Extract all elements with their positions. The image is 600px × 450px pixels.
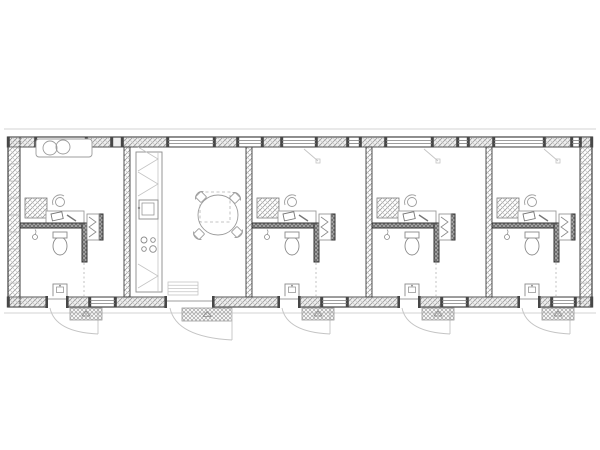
- unit-1-basin-tap: [59, 285, 61, 287]
- unit-3-door-cut: [400, 296, 418, 308]
- main-entry-jamb: [164, 296, 167, 308]
- unit-3-toilet-tank: [405, 232, 419, 238]
- unit-2-door-jamb: [277, 296, 280, 308]
- unit-4-plumbing-wall: [554, 223, 559, 262]
- main-entry-mat: [182, 308, 232, 321]
- unit-1-toilet-tank: [53, 232, 67, 238]
- unit-4-pendant-light: [505, 235, 510, 240]
- unit-1-desk-chair: [56, 198, 65, 207]
- wall-pier-bottom: [298, 297, 322, 307]
- wall-pier-bottom: [8, 297, 48, 307]
- unit-2-pendant-cord: [267, 230, 268, 235]
- unit-1-shelf: [25, 198, 47, 218]
- wall-post: [590, 137, 593, 148]
- wall-post: [384, 137, 387, 148]
- chair-seat: [229, 192, 240, 203]
- floor-plan-svg: [0, 0, 600, 450]
- exterior-wall-right: [580, 137, 592, 307]
- exterior-wall-left: [8, 137, 20, 307]
- unit-2-desk-chair: [288, 198, 297, 207]
- chair-seat: [193, 228, 204, 239]
- wall-post: [359, 137, 362, 148]
- wall-post: [121, 137, 124, 148]
- window-cut: [442, 298, 467, 306]
- wall-pier-top: [544, 137, 572, 147]
- wall-post: [315, 137, 318, 148]
- window-cut: [282, 138, 316, 146]
- dining-chair-2: [228, 191, 242, 205]
- wall-pier-bottom: [418, 297, 442, 307]
- wall-post: [346, 137, 349, 148]
- unit-4-basin-tap: [531, 285, 533, 287]
- kitchen-dining: [136, 147, 244, 340]
- wall-post: [280, 137, 283, 148]
- wall-post: [467, 137, 470, 148]
- wall-pier-top: [432, 137, 458, 147]
- window-cut: [494, 138, 544, 146]
- unit-3-door-jamb: [397, 296, 400, 308]
- unit-4-shower-wall: [571, 214, 575, 240]
- window-cut: [168, 138, 214, 146]
- bay-partition-2: [246, 147, 252, 297]
- unit-4-pendant-cord: [507, 230, 508, 235]
- unit-4-desk-chair: [528, 198, 537, 207]
- unit-1-door-jamb: [66, 296, 69, 308]
- unit-1-plumbing-wall: [82, 223, 87, 262]
- unit-3-plumbing-wall: [434, 223, 439, 262]
- floor-plan: [0, 0, 600, 450]
- unit-2-toilet: [285, 237, 299, 255]
- wall-pier-bottom: [66, 297, 90, 307]
- wall-post: [579, 137, 582, 148]
- window-cut: [90, 298, 115, 306]
- chair-seat: [195, 191, 206, 202]
- wall-pier-top: [122, 137, 168, 147]
- unit-1-pendant-light: [33, 235, 38, 240]
- unit-3-desk-chair: [408, 198, 417, 207]
- wall-pier-top: [468, 137, 494, 147]
- unit-1-door-cut: [48, 296, 66, 308]
- unit-2-toilet-tank: [285, 232, 299, 238]
- window-cut: [386, 138, 432, 146]
- window-cut: [322, 298, 347, 306]
- kitchen-faucet: [138, 207, 140, 209]
- wall-pier-bottom: [212, 297, 280, 307]
- wall-post: [110, 137, 113, 148]
- unit-2-entry-mat: [302, 308, 334, 320]
- unit-1-desk-chair-back: [53, 195, 64, 205]
- unit-4-toilet-tank: [525, 232, 539, 238]
- unit-4-toilet: [525, 237, 539, 255]
- wall-post: [346, 297, 349, 308]
- dining-chair-3: [230, 225, 244, 239]
- unit-2-shower-wall: [331, 214, 335, 240]
- unit-4-door-jamb: [538, 296, 541, 308]
- unit-1-shower-wall: [99, 214, 103, 240]
- unit-4-door-jamb: [517, 296, 520, 308]
- unit-2-pendant-light: [265, 235, 270, 240]
- unit-1-toilet: [53, 237, 67, 255]
- unit-2-door-jamb: [298, 296, 301, 308]
- wall-post: [570, 137, 573, 148]
- wall-pier-top: [316, 137, 348, 147]
- unit-3-shelf: [377, 198, 399, 218]
- wall-post: [7, 297, 10, 308]
- main-entry-jamb: [212, 296, 215, 308]
- wall-post: [590, 297, 593, 308]
- wall-post: [213, 137, 216, 148]
- wall-post: [574, 297, 577, 308]
- unit-3-bath-partition: [372, 223, 436, 228]
- wall-post: [543, 137, 546, 148]
- wall-pier-top: [360, 137, 386, 147]
- wall-post: [456, 137, 459, 148]
- unit-4-shelf: [497, 198, 519, 218]
- wall-post: [261, 137, 264, 148]
- unit-4-door-cut: [520, 296, 538, 308]
- wall-post: [550, 297, 553, 308]
- unit-3-basin-tap: [411, 285, 413, 287]
- wall-pier-bottom: [575, 297, 592, 307]
- unit-3-pendant-cord: [387, 230, 388, 235]
- unit-4-bath-partition: [492, 223, 556, 228]
- unit-2-plumbing-wall: [314, 223, 319, 262]
- unit-3-desk-chair-back: [405, 195, 416, 205]
- unit-1-door-jamb: [45, 296, 48, 308]
- unit-4-entry-mat: [542, 308, 574, 320]
- wall-post: [88, 297, 91, 308]
- unit-2-bath-partition: [252, 223, 316, 228]
- unit-3-entry-mat: [422, 308, 454, 320]
- unit-3-door-jamb: [418, 296, 421, 308]
- unit-1-pendant-cord: [35, 230, 36, 235]
- wall-pier-top: [262, 137, 282, 147]
- unit-2-shelf: [257, 198, 279, 218]
- unit-3-pendant-light: [385, 235, 390, 240]
- unit-1-bath-partition: [20, 223, 84, 228]
- bay-partition-4: [486, 147, 492, 297]
- wall-pier-bottom: [347, 297, 400, 307]
- wall-pier-top: [214, 137, 238, 147]
- window-cut: [348, 138, 360, 146]
- wall-post: [492, 137, 495, 148]
- wall-post: [114, 297, 117, 308]
- unit-3-toilet: [405, 237, 419, 255]
- wall-post: [431, 137, 434, 148]
- unit-2-desk-chair-back: [285, 195, 296, 205]
- main-entry-cut: [167, 296, 212, 308]
- bay-partition-3: [366, 147, 372, 297]
- wall-post: [7, 137, 10, 148]
- wall-pier-top: [8, 137, 36, 147]
- unit-4-desk-chair-back: [525, 195, 536, 205]
- wall-post: [320, 297, 323, 308]
- wall-pier-bottom: [115, 297, 167, 307]
- wall-post: [440, 297, 443, 308]
- window-cut: [238, 138, 262, 146]
- unit-2-door-cut: [280, 296, 298, 308]
- wall-post: [166, 137, 169, 148]
- wall-pier-bottom: [467, 297, 520, 307]
- window-cut: [458, 138, 468, 146]
- unit-1-entry-mat: [70, 308, 102, 320]
- unit-2-basin-tap: [291, 285, 293, 287]
- wall-post: [236, 137, 239, 148]
- bay-partition-1: [124, 147, 130, 297]
- window-cut: [552, 298, 575, 306]
- wall-post: [466, 297, 469, 308]
- unit-3-shower-wall: [451, 214, 455, 240]
